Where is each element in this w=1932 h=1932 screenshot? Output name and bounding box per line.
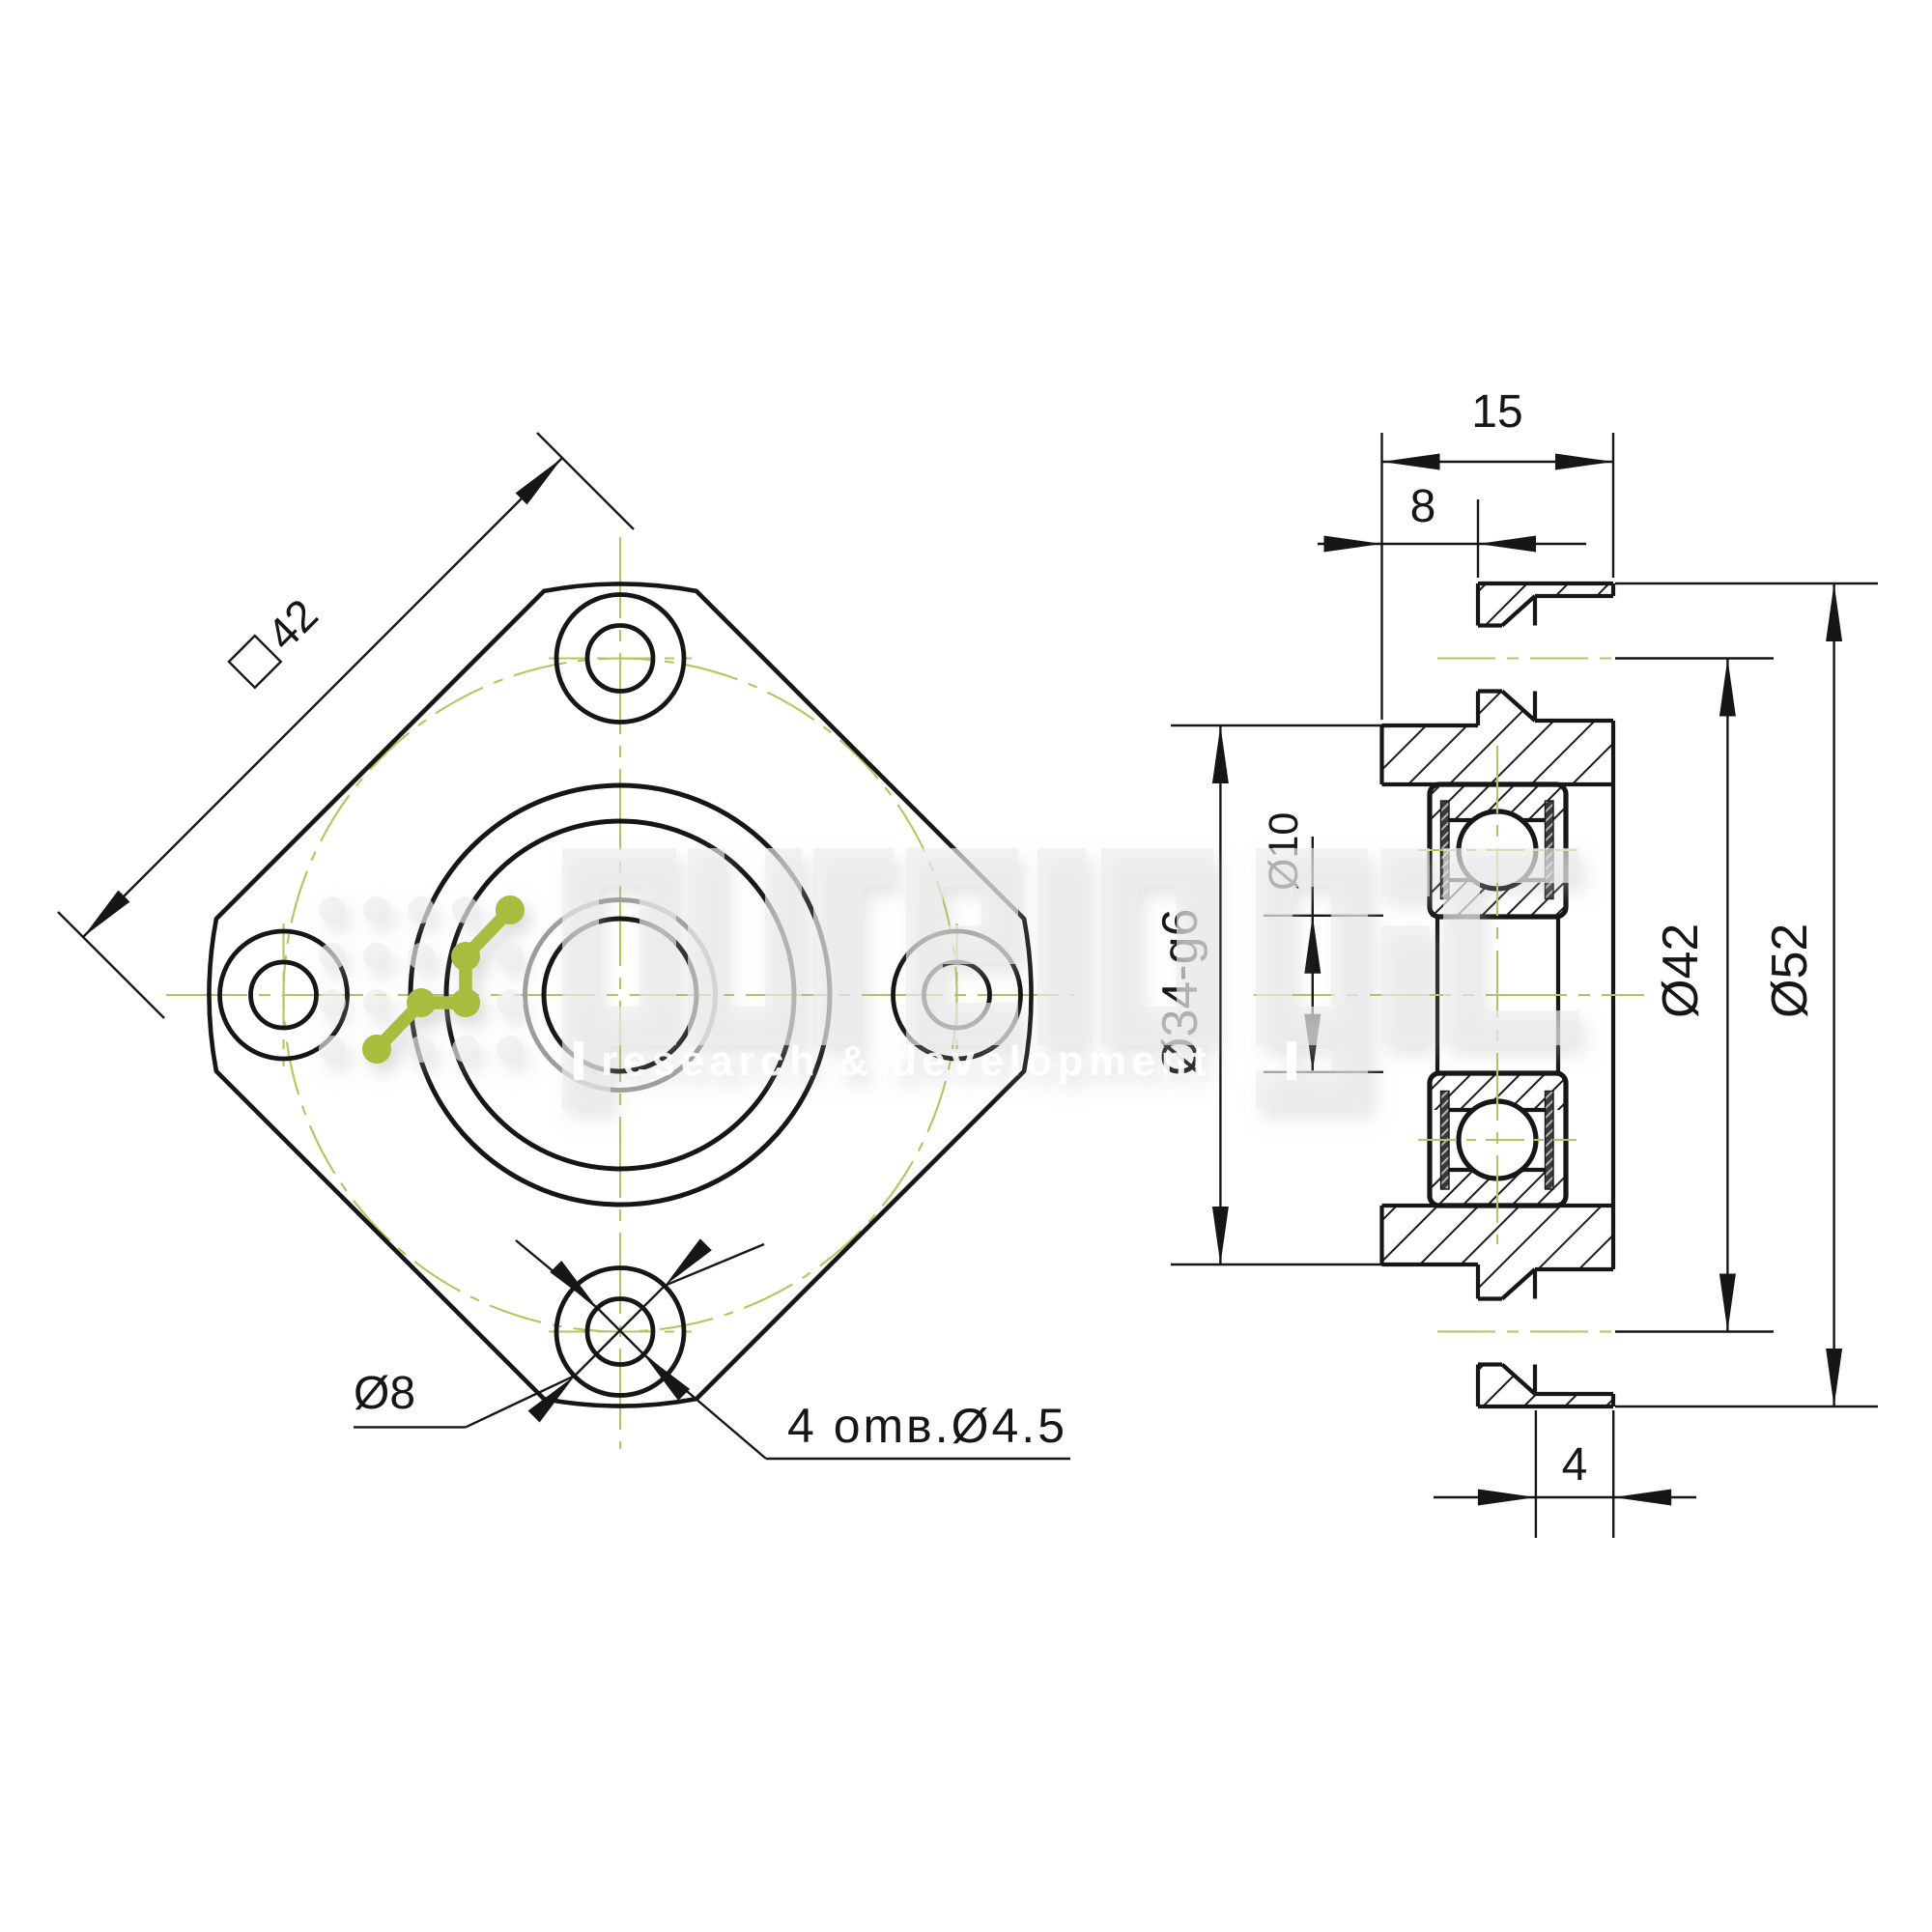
svg-text:Ø8: Ø8 <box>354 1368 415 1419</box>
svg-text:Ø52: Ø52 <box>1762 923 1818 1018</box>
svg-text:4: 4 <box>1562 1439 1588 1491</box>
svg-text:Ø42: Ø42 <box>1653 923 1709 1018</box>
svg-text:15: 15 <box>1471 386 1522 438</box>
svg-text:4 omв.Ø4.5: 4 omв.Ø4.5 <box>787 1399 1067 1453</box>
svg-text:research & development: research & development <box>601 1037 1211 1085</box>
svg-text:8: 8 <box>1410 481 1436 532</box>
